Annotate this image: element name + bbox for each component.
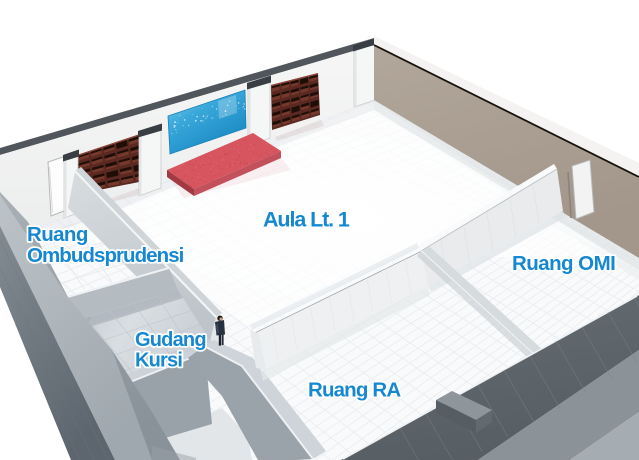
svg-text:Gudang: Gudang — [135, 329, 206, 351]
svg-text:Ombudsprudensi: Ombudsprudensi — [27, 244, 184, 267]
svg-text:Ruang RA: Ruang RA — [308, 379, 401, 402]
svg-text:Kursi: Kursi — [135, 350, 182, 372]
svg-text:Aula Lt. 1: Aula Lt. 1 — [263, 208, 350, 232]
svg-text:Ruang: Ruang — [27, 223, 88, 246]
svg-text:Ruang OMI: Ruang OMI — [512, 252, 615, 275]
